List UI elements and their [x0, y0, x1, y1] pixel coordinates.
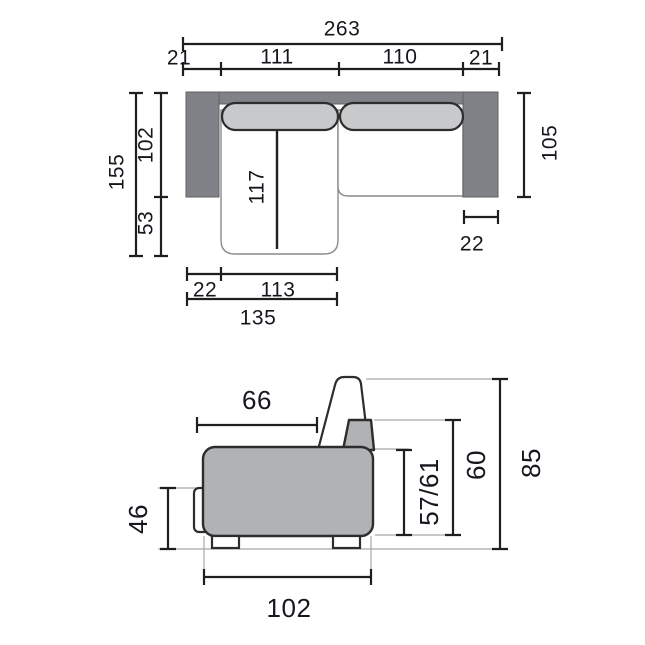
dim-label-right-side-depth: 105	[540, 125, 561, 162]
top-view-chaise-outline	[221, 110, 338, 254]
dim-label-sofa-depth: 102	[136, 127, 157, 164]
dim-label-arm-left-width: 21	[167, 48, 191, 69]
top-view-right-armrest	[463, 92, 498, 197]
side-view-back-foot	[333, 536, 360, 548]
dim-label-chaise-width: 113	[261, 280, 296, 301]
side-view-front-foot	[212, 536, 239, 548]
dim-line-seat-depth	[197, 417, 317, 433]
dim-label-seat-depth: 66	[242, 387, 272, 413]
dim-label-arm-right-width: 21	[469, 48, 493, 69]
dim-line-width-segments	[183, 62, 499, 76]
dim-label-base-height: 46	[125, 504, 151, 534]
dim-label-seat-right-width: 110	[383, 47, 418, 68]
dim-label-overall-depth: 155	[107, 154, 128, 191]
top-view-left-armrest	[186, 92, 219, 197]
technical-drawing-canvas	[0, 0, 645, 645]
top-view-left-cushion	[222, 103, 338, 130]
dim-label-seat-height: 57/61	[416, 458, 442, 526]
dim-label-overall-width: 263	[324, 19, 361, 40]
dim-line-arm-width	[464, 210, 498, 224]
dim-line-armrest-height	[445, 420, 461, 535]
dim-label-chaise-extension: 53	[136, 211, 157, 235]
dim-line-base-height	[160, 488, 176, 549]
dim-label-arm-width: 22	[460, 234, 484, 255]
dim-line-seat-height	[396, 450, 412, 535]
dim-line-right-side-depth	[517, 93, 531, 197]
dim-line-overall-height	[492, 379, 508, 549]
dim-label-overall-height: 85	[518, 448, 544, 478]
dim-label-chaise-overall-width: 135	[240, 308, 277, 329]
dim-label-armrest-height: 60	[463, 450, 489, 480]
dim-label-seat-left-width: 111	[260, 47, 293, 68]
side-view-armrest-profile	[343, 420, 374, 450]
dim-label-chaise-length: 117	[247, 170, 268, 205]
sofa-dimension-diagram: 263 21 111 110 21 155 102 53 117 105 22 …	[0, 0, 645, 645]
top-view-right-cushion	[340, 103, 463, 130]
side-view-body	[203, 447, 373, 536]
dim-label-side-overall-depth: 102	[267, 595, 312, 621]
dim-line-side-overall-depth	[204, 569, 371, 585]
dim-label-chaise-inset: 22	[193, 280, 217, 301]
